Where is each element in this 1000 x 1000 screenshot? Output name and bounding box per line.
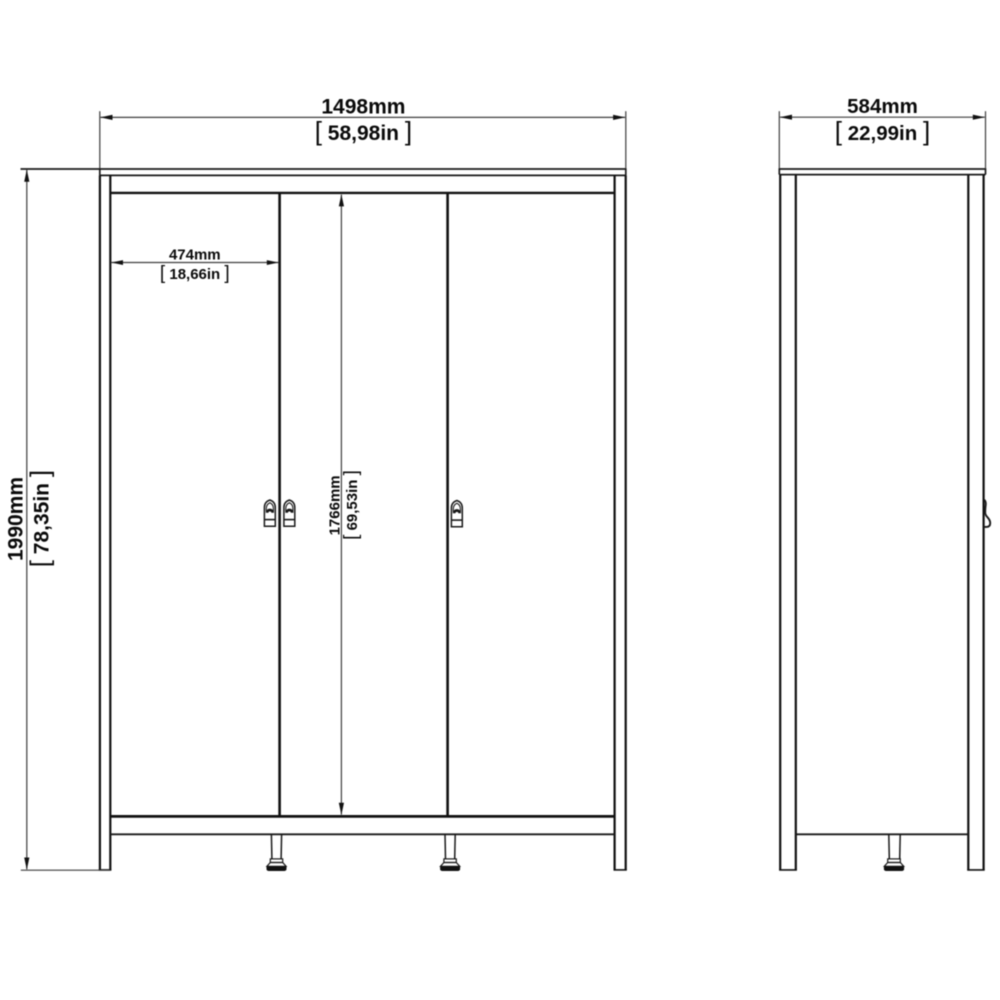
svg-text:[ 69,53in ]: [ 69,53in ]: [341, 470, 362, 540]
svg-text:584mm: 584mm: [847, 95, 918, 118]
svg-text:[ 78,35in ]: [ 78,35in ]: [25, 470, 55, 567]
svg-text:[ 58,98in ]: [ 58,98in ]: [315, 116, 412, 146]
svg-text:474mm: 474mm: [169, 246, 221, 263]
svg-text:[ 22,99in ]: [ 22,99in ]: [835, 116, 930, 146]
svg-text:1766mm: 1766mm: [326, 475, 343, 535]
svg-text:[ 18,66in ]: [ 18,66in ]: [160, 263, 230, 284]
svg-text:1990mm: 1990mm: [4, 477, 27, 561]
svg-text:1498mm: 1498mm: [321, 95, 405, 118]
